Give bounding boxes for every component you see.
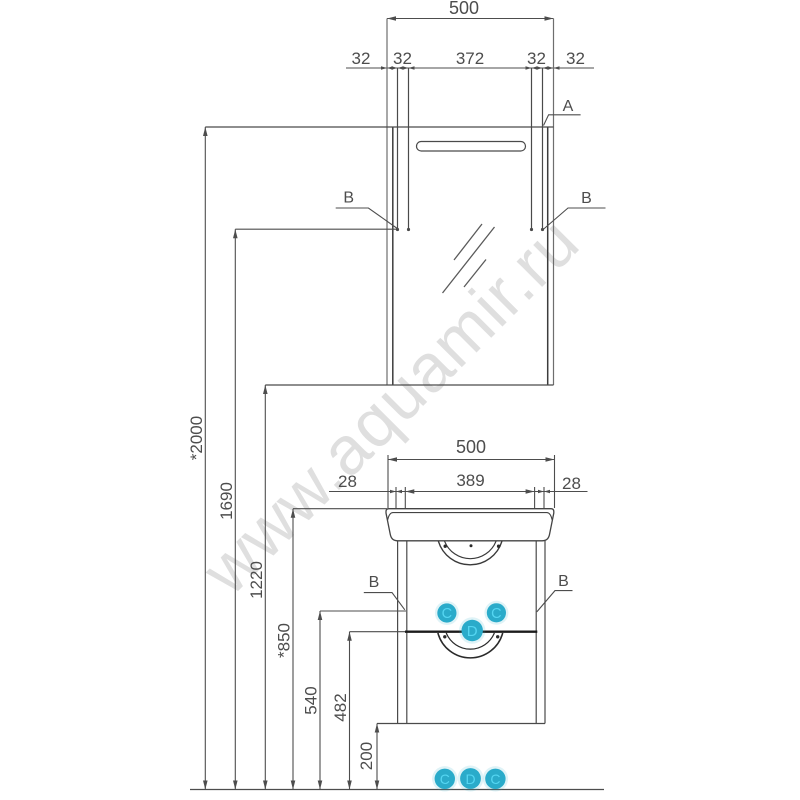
svg-text:C: C (442, 606, 452, 622)
svg-text:389: 389 (456, 471, 484, 490)
svg-text:200: 200 (357, 742, 376, 770)
svg-text:32: 32 (527, 49, 546, 68)
svg-text:500: 500 (449, 0, 479, 18)
svg-text:B: B (558, 573, 569, 590)
svg-text:C: C (490, 771, 500, 787)
svg-text:C: C (491, 606, 501, 622)
svg-text:32: 32 (352, 49, 371, 68)
svg-text:*850: *850 (275, 623, 294, 658)
svg-text:540: 540 (302, 686, 321, 714)
svg-text:32: 32 (566, 49, 585, 68)
svg-text:482: 482 (331, 693, 350, 721)
svg-text:32: 32 (393, 49, 412, 68)
svg-text:*2000: *2000 (187, 416, 206, 460)
svg-text:28: 28 (338, 472, 357, 491)
svg-text:D: D (465, 771, 475, 787)
svg-text:D: D (467, 623, 478, 640)
svg-text:B: B (343, 190, 354, 207)
svg-text:500: 500 (456, 437, 486, 457)
svg-text:28: 28 (562, 474, 581, 493)
svg-text:B: B (581, 190, 592, 207)
svg-text:A: A (563, 98, 574, 115)
svg-text:372: 372 (456, 49, 484, 68)
svg-text:B: B (369, 574, 380, 591)
svg-text:1690: 1690 (217, 482, 236, 520)
svg-text:C: C (440, 771, 450, 787)
svg-text:1220: 1220 (247, 561, 266, 599)
